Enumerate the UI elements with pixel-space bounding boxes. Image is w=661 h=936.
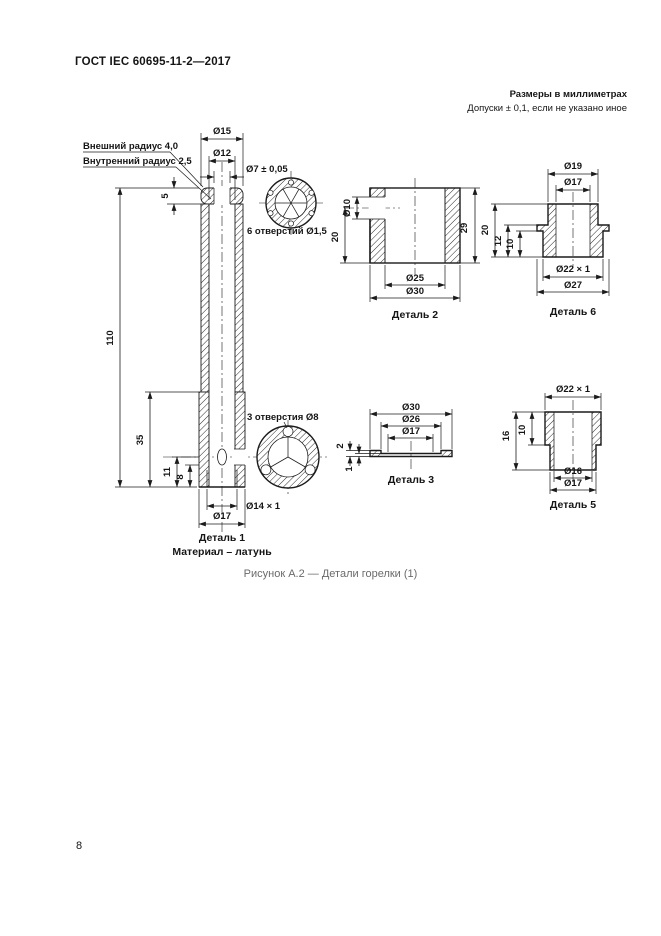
part3-dim-d26: Ø26 xyxy=(402,414,420,425)
part2-dim-h20: 20 xyxy=(330,232,341,243)
part6-dim-h20: 20 xyxy=(480,225,491,236)
part5-dim-d16: Ø16 xyxy=(564,466,582,477)
part3-dim-t2: 2 xyxy=(335,443,346,448)
part1-dim-h5: 5 xyxy=(160,193,171,199)
part6-dim-h10: 10 xyxy=(505,239,516,250)
part5-dim-h10: 10 xyxy=(517,425,528,436)
part6-dim-d27: Ø27 xyxy=(564,280,582,291)
part1-dim-h11: 11 xyxy=(162,466,173,477)
part2-right-wall xyxy=(445,188,460,263)
part5-dim-h16: 16 xyxy=(501,431,512,442)
part6-label: Деталь 6 xyxy=(550,306,596,318)
part6-drawing: Ø19 Ø17 20 12 10 Ø22 × 1 Ø27 Деталь 6 xyxy=(480,161,609,318)
part1-dim-d12: Ø12 xyxy=(213,148,231,159)
part2-dim-d30: Ø30 xyxy=(406,286,424,297)
part6-dim-h12: 12 xyxy=(493,236,504,247)
part1-dim-h35: 35 xyxy=(135,434,146,445)
part1-holes-side-note: 3 отверстия Ø8 xyxy=(247,412,319,423)
part1-holes-top-note: 6 отверстий Ø1,5 xyxy=(247,226,328,237)
part5-dim-d22: Ø22 × 1 xyxy=(556,384,591,395)
part6-dim-d19: Ø19 xyxy=(564,161,582,172)
figure-caption: Рисунок А.2 — Детали горелки (1) xyxy=(0,568,661,580)
part1-drawing: Ø15 Ø12 Ø7 ± 0,05 Внешний радиус 4,0 Вну… xyxy=(83,126,328,558)
part2-dim-d10: Ø10 xyxy=(342,199,353,217)
part2-drawing: Ø10 20 29 Ø25 Ø30 Деталь 2 xyxy=(330,178,480,321)
part3-dim-d30: Ø30 xyxy=(402,402,420,413)
part1-side-hole xyxy=(218,449,227,465)
part1-dim-h110: 110 xyxy=(105,330,116,345)
part1-dim-d7: Ø7 ± 0,05 xyxy=(246,164,288,175)
part1-outer-radius-callout: Внешний радиус 4,0 xyxy=(83,141,178,152)
part2-label: Деталь 2 xyxy=(392,309,438,321)
part5-drawing: Ø22 × 1 16 10 Ø16 Ø17 Деталь 5 xyxy=(501,384,601,511)
part3-label: Деталь 3 xyxy=(388,474,434,486)
part6-dim-d17: Ø17 xyxy=(564,177,582,188)
part1-section-view: 3 отверстия Ø8 xyxy=(247,412,319,494)
part3-dim-t1: 1 xyxy=(344,466,355,472)
part1-left-wall xyxy=(201,204,209,392)
part1-end-view: 6 отверстий Ø1,5 xyxy=(247,171,328,237)
part3-drawing: Ø30 Ø26 Ø17 2 1 Деталь 3 xyxy=(335,402,452,486)
part1-dim-d14: Ø14 × 1 xyxy=(246,501,281,512)
part1-material-label: Материал – латунь xyxy=(172,546,272,558)
document-page: ГОСТ IEC 60695-11-2—2017 Размеры в милли… xyxy=(0,0,661,936)
part6-dim-d22: Ø22 × 1 xyxy=(556,264,591,275)
part5-label: Деталь 5 xyxy=(550,499,596,511)
page-number: 8 xyxy=(76,840,82,852)
part1-dim-d17: Ø17 xyxy=(213,511,231,522)
part1-right-wall xyxy=(235,204,243,392)
figure-a2-drawing: Ø15 Ø12 Ø7 ± 0,05 Внешний радиус 4,0 Вну… xyxy=(0,0,661,936)
part1-dim-h8: 8 xyxy=(175,474,186,479)
part2-dim-d25: Ø25 xyxy=(406,273,425,284)
part1-inner-radius-callout: Внутренний радиус 2,5 xyxy=(83,156,192,167)
part5-dim-d17: Ø17 xyxy=(564,478,582,489)
part2-dim-h29: 29 xyxy=(459,223,470,234)
part3-dim-d17: Ø17 xyxy=(402,426,420,437)
part1-dim-d15: Ø15 xyxy=(213,126,232,137)
part1-label: Деталь 1 xyxy=(199,532,245,544)
